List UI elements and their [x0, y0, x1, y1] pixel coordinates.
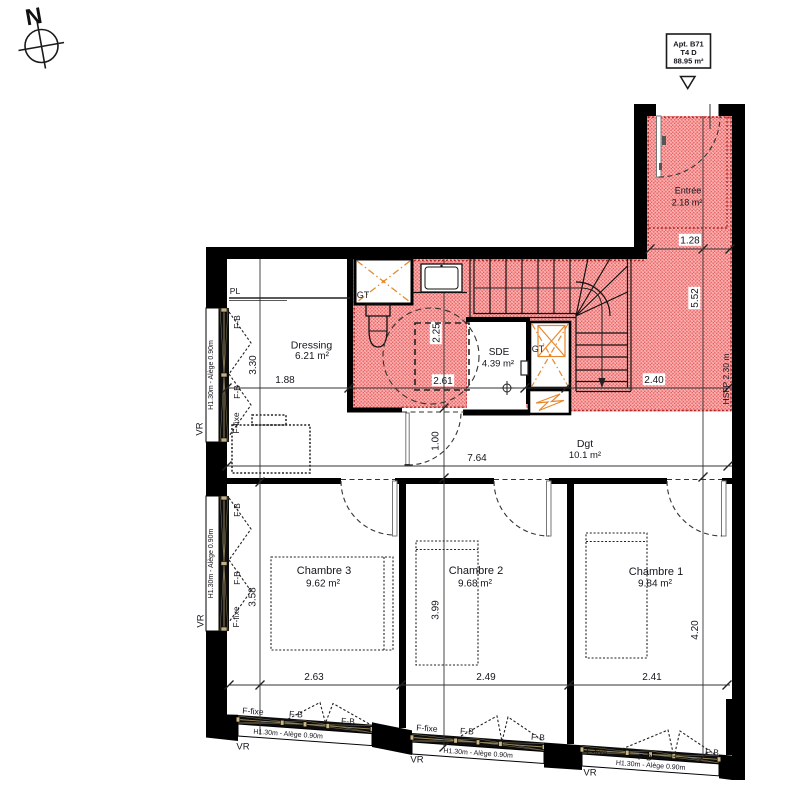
svg-text:PL: PL [230, 286, 241, 296]
svg-text:3.30: 3.30 [248, 355, 259, 375]
svg-text:2.40: 2.40 [644, 375, 664, 386]
svg-text:9.84 m²: 9.84 m² [638, 579, 673, 590]
svg-text:HSFP 2.30 m: HSFP 2.30 m [721, 354, 731, 405]
svg-text:VR: VR [410, 754, 423, 765]
svg-text:2.63: 2.63 [304, 672, 324, 683]
svg-text:Dgt: Dgt [577, 438, 593, 450]
svg-text:F-B: F-B [341, 716, 356, 727]
svg-text:9.68 m²: 9.68 m² [458, 579, 493, 590]
svg-text:F-B: F-B [638, 752, 653, 763]
svg-text:1.00: 1.00 [431, 431, 442, 451]
svg-text:Chambre 2: Chambre 2 [449, 565, 503, 577]
svg-text:2.41: 2.41 [642, 672, 662, 683]
svg-text:VR: VR [236, 741, 249, 752]
svg-text:F-B: F-B [531, 732, 546, 743]
svg-text:F-fixe: F-fixe [231, 412, 241, 434]
svg-text:F-B: F-B [232, 503, 242, 517]
svg-text:9.62 m²: 9.62 m² [306, 579, 341, 590]
svg-text:3.99: 3.99 [431, 600, 442, 620]
svg-text:F-B: F-B [460, 726, 475, 737]
svg-text:1.88: 1.88 [275, 375, 295, 386]
svg-text:2.61: 2.61 [433, 376, 453, 387]
svg-text:Dressing: Dressing [291, 339, 333, 351]
svg-text:F-fixe: F-fixe [231, 606, 241, 628]
svg-text:GT: GT [357, 290, 370, 300]
svg-text:Entrée: Entrée [675, 186, 702, 196]
svg-text:F-B: F-B [289, 709, 304, 720]
svg-text:88.95 m²: 88.95 m² [673, 57, 704, 66]
svg-text:H1.30m - Alège 0.90m: H1.30m - Alège 0.90m [208, 529, 215, 599]
svg-text:H1.30m - Alège 0.90m: H1.30m - Alège 0.90m [208, 340, 215, 410]
svg-text:Chambre 1: Chambre 1 [629, 566, 683, 578]
svg-text:4.39 m²: 4.39 m² [482, 358, 514, 369]
svg-text:VR: VR [195, 614, 206, 627]
svg-text:7.64: 7.64 [467, 453, 487, 464]
svg-text:4.20: 4.20 [690, 620, 701, 640]
svg-text:SDE: SDE [489, 347, 510, 358]
svg-text:F-fixe: F-fixe [416, 722, 438, 734]
svg-text:1.28: 1.28 [680, 236, 700, 247]
svg-text:3.58: 3.58 [248, 587, 259, 607]
svg-text:10.1 m²: 10.1 m² [569, 450, 601, 461]
svg-text:2.18 m²: 2.18 m² [672, 198, 703, 208]
svg-text:Chambre 3: Chambre 3 [297, 565, 351, 577]
svg-text:GT: GT [532, 344, 545, 354]
svg-text:F-B: F-B [232, 385, 242, 399]
svg-text:VR: VR [194, 422, 205, 435]
svg-text:6.21 m²: 6.21 m² [295, 351, 330, 362]
svg-text:2.49: 2.49 [476, 672, 496, 683]
svg-text:F-B: F-B [232, 315, 242, 329]
svg-text:2.25: 2.25 [432, 323, 443, 343]
svg-text:VR: VR [583, 767, 596, 778]
svg-text:F-fixe: F-fixe [586, 746, 608, 758]
svg-text:F-B: F-B [232, 571, 242, 585]
svg-text:5.52: 5.52 [690, 288, 701, 308]
svg-text:F-fixe: F-fixe [242, 705, 264, 717]
